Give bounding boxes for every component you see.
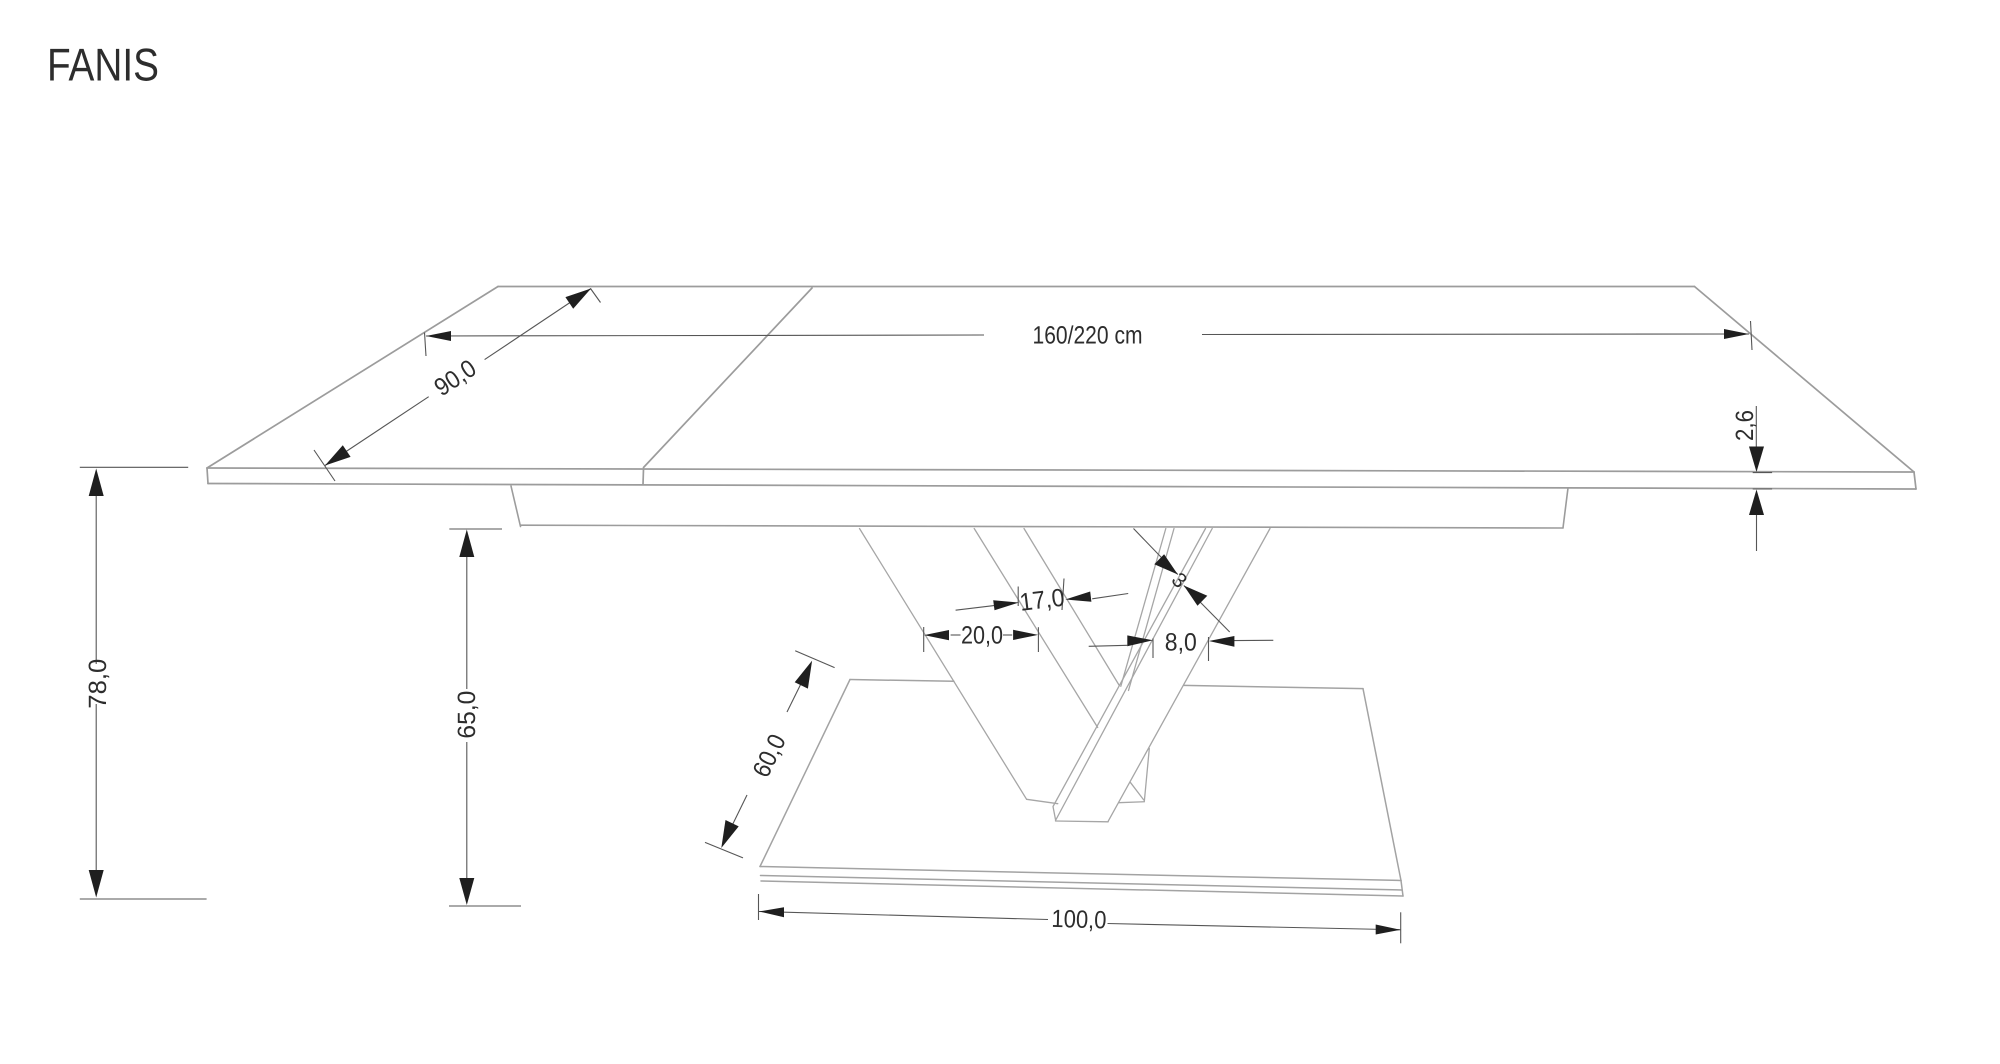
svg-text:17,0: 17,0	[1018, 584, 1066, 617]
svg-text:78,0: 78,0	[84, 659, 112, 709]
svg-text:2,6: 2,6	[1731, 410, 1759, 441]
svg-text:8,0: 8,0	[1165, 628, 1197, 656]
svg-text:20,0: 20,0	[961, 621, 1003, 649]
svg-text:160/220 cm: 160/220 cm	[1033, 322, 1143, 350]
svg-text:100,0: 100,0	[1051, 905, 1107, 935]
svg-text:FANIS: FANIS	[47, 39, 159, 91]
svg-text:65,0: 65,0	[453, 691, 481, 739]
